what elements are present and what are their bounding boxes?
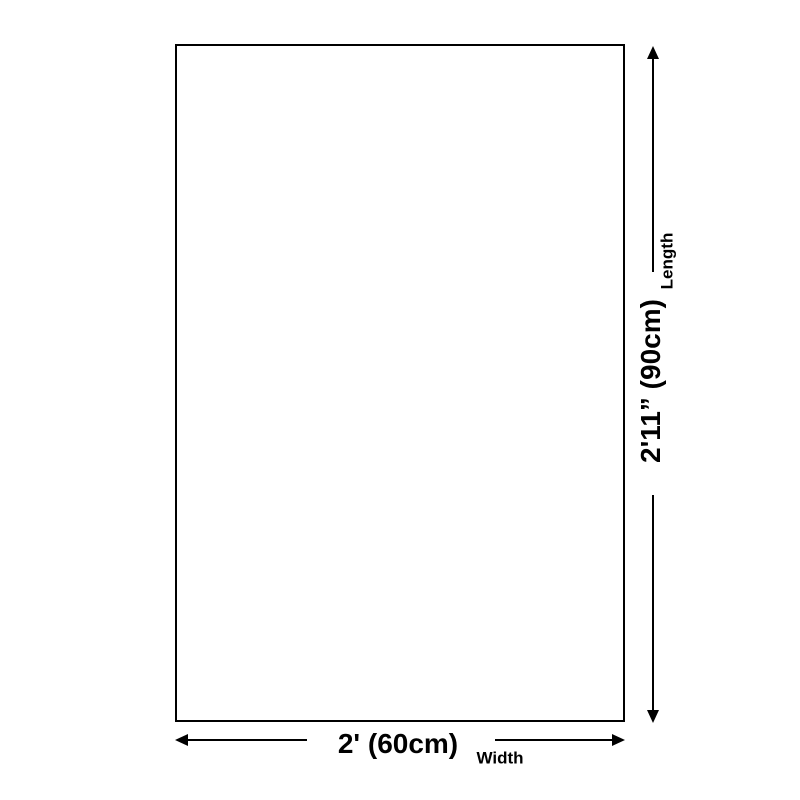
arrow-down-icon bbox=[647, 710, 659, 723]
width-arrow-line-left bbox=[188, 739, 307, 741]
length-arrow-line-bottom bbox=[652, 495, 654, 712]
length-value-label: 2'11” (90cm) bbox=[637, 299, 665, 463]
width-axis-label: Width bbox=[476, 750, 523, 767]
width-arrow-line-right bbox=[495, 739, 612, 741]
arrow-left-icon bbox=[175, 734, 188, 746]
product-outline-rectangle bbox=[175, 44, 625, 722]
length-axis-label: Length bbox=[659, 233, 676, 290]
width-value-label: 2' (60cm) bbox=[338, 730, 458, 758]
length-arrow-line-top bbox=[652, 57, 654, 272]
dimension-diagram: Length 2'11” (90cm) 2' (60cm) Width bbox=[0, 0, 800, 800]
arrow-right-icon bbox=[612, 734, 625, 746]
